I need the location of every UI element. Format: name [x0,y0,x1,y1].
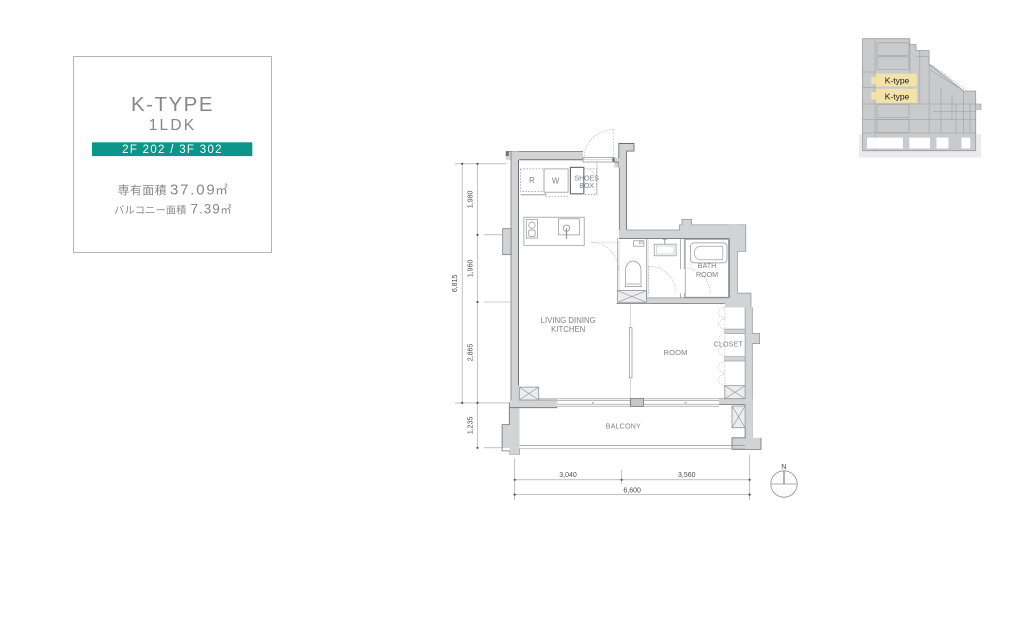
svg-text:2,865: 2,865 [468,344,475,362]
svg-text:KITCHEN: KITCHEN [551,325,585,334]
svg-text:BATH: BATH [698,261,717,270]
svg-text:K-type: K-type [885,76,910,86]
svg-text:N: N [781,462,786,471]
svg-text:37.09: 37.09 [170,181,217,198]
svg-text:2F 202 / 3F 302: 2F 202 / 3F 302 [122,144,223,156]
svg-text:ROOM: ROOM [696,270,718,279]
svg-text:K-type: K-type [885,91,910,101]
svg-text:1LDK: 1LDK [149,117,197,134]
svg-text:ROOM: ROOM [663,348,687,357]
svg-text:6,600: 6,600 [623,487,641,494]
svg-text:LIVING DINING: LIVING DINING [541,316,596,325]
svg-text:BALCONY: BALCONY [606,422,641,431]
svg-text:W: W [552,176,560,185]
svg-text:1,235: 1,235 [468,417,475,435]
svg-text:3,560: 3,560 [678,472,696,479]
svg-text:3,040: 3,040 [559,472,577,479]
svg-text:1,980: 1,980 [468,190,475,208]
svg-text:K-TYPE: K-TYPE [131,93,214,116]
svg-text:1,960: 1,960 [468,260,475,278]
svg-text:7.39: 7.39 [191,202,221,217]
svg-text:R: R [529,176,535,185]
svg-text:BOX: BOX [579,183,594,190]
svg-text:CLOSET: CLOSET [714,342,744,349]
svg-text:6,815: 6,815 [452,275,459,293]
